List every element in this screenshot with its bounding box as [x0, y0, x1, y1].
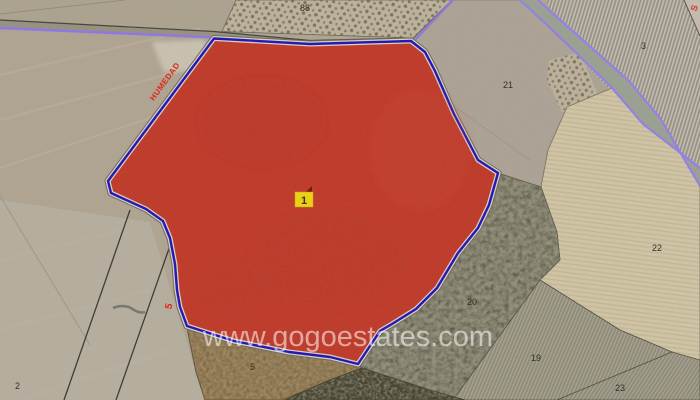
- svg-text:www.gogoestates.com: www.gogoestates.com: [202, 321, 493, 353]
